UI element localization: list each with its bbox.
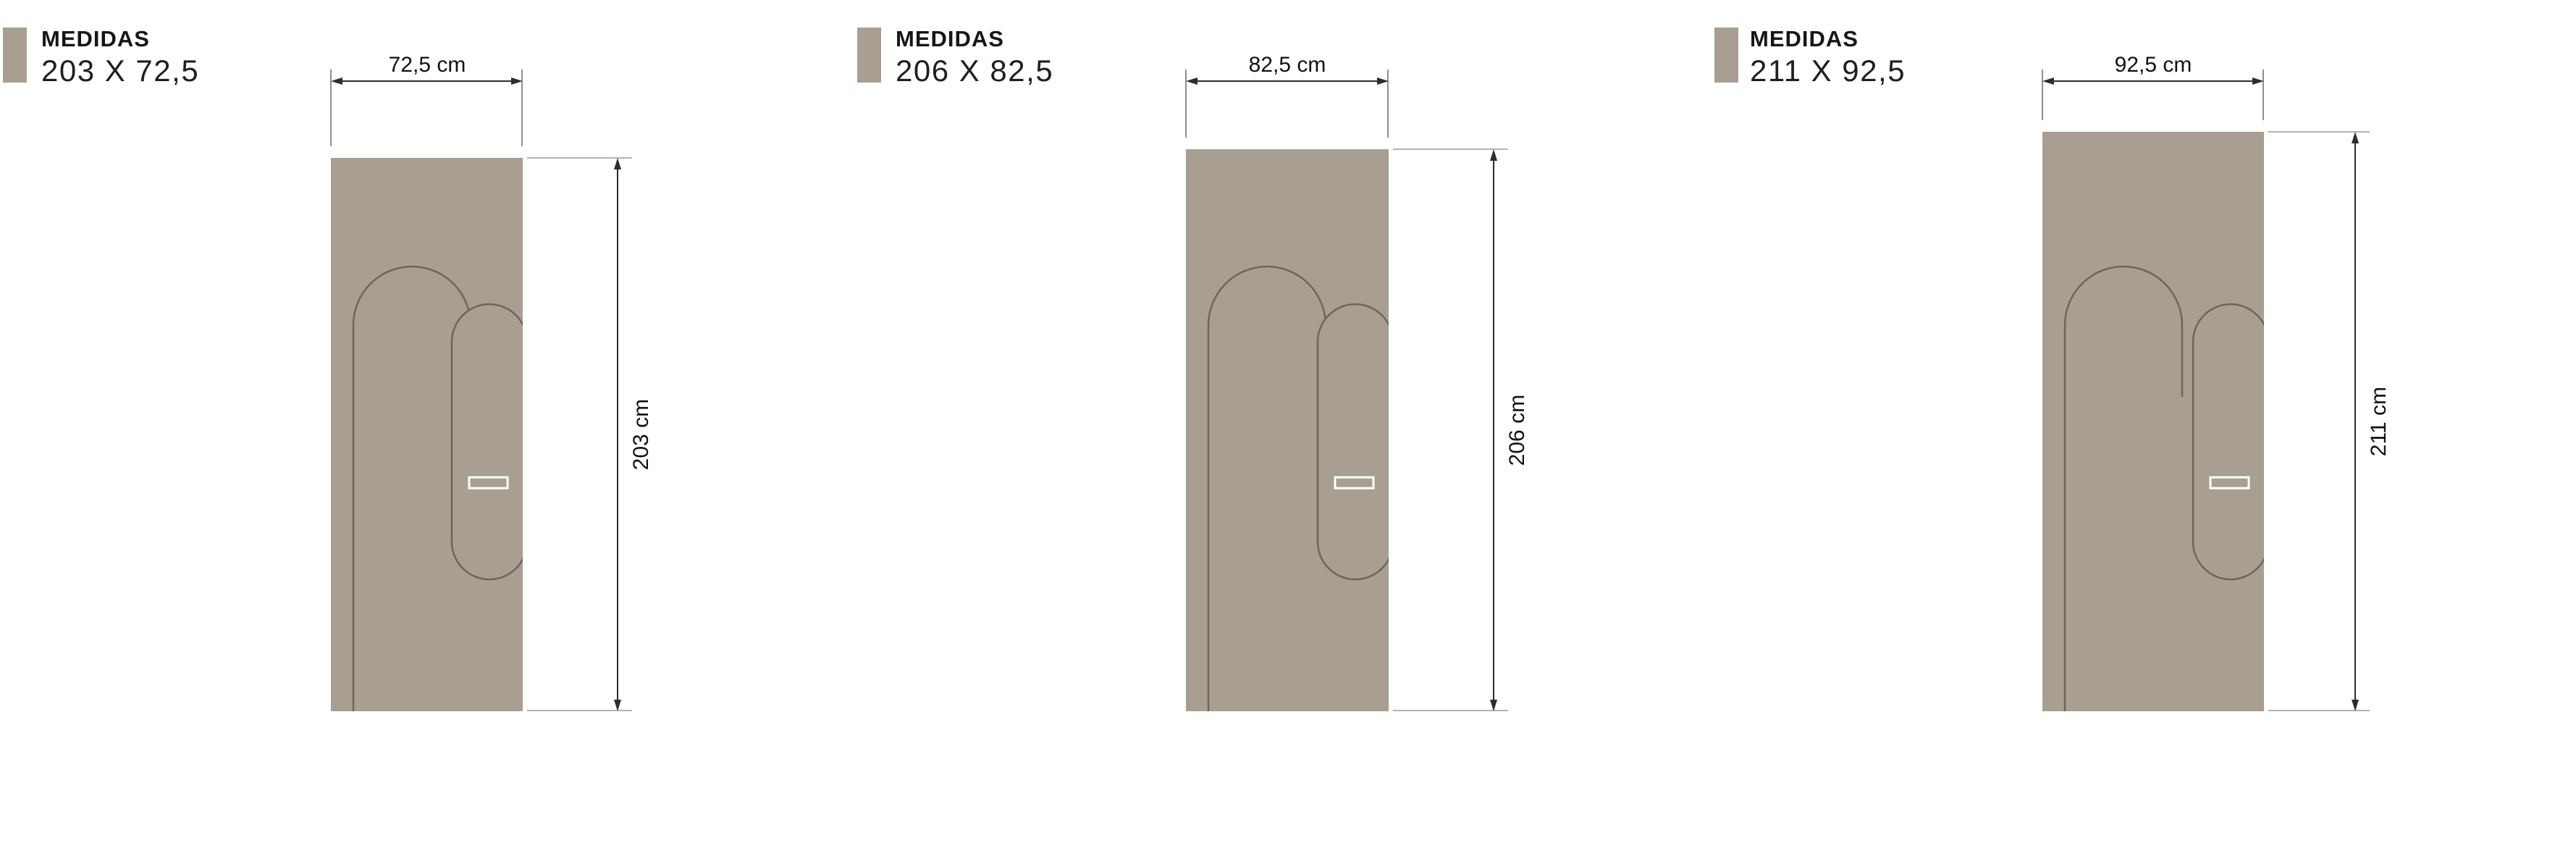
height-dimension-line [617,167,618,703]
door-handle [1335,477,1373,488]
height-dimension-line [2354,141,2356,703]
panel-medidas-211x92: MEDIDAS 211 X 92,5 92,5 cm 211 cm [1709,0,2567,859]
width-dimension-label: 72,5 cm [389,53,466,77]
panel-title: MEDIDAS [41,26,150,52]
dim-arrow-left-icon [331,77,342,85]
panel-medidas-206x82: MEDIDAS 206 X 82,5 82,5 cm 206 cm [854,0,1713,859]
height-dimension-label: 206 cm [1505,395,1530,466]
arch-groove [2065,267,2182,711]
panel-size-value: 211 X 92,5 [1750,54,1906,88]
color-swatch [1714,28,1738,83]
width-dimension-line [1195,80,1379,82]
width-dimension-line [340,80,513,82]
door-groove-pattern [1186,149,1389,711]
measurement-sheet: MEDIDAS 203 X 72,5 72,5 cm 203 cm MEDIDA… [0,0,2576,859]
dim-arrow-right-icon [2252,77,2264,85]
panel-size-value: 203 X 72,5 [41,54,199,88]
dim-arrow-down-icon [1490,700,1497,711]
capsule-groove [1318,304,1389,579]
door-groove-pattern [2042,132,2264,711]
panel-title: MEDIDAS [896,26,1004,52]
dim-arrow-down-icon [614,700,621,711]
dim-arrow-right-icon [511,77,523,85]
dim-arrow-up-icon [1490,149,1497,161]
door-graphic [331,158,523,711]
capsule-groove [452,304,523,579]
width-dimension-label: 92,5 cm [2115,53,2192,77]
dim-arrow-left-icon [1186,77,1197,85]
panel-title: MEDIDAS [1750,26,1859,52]
door-groove-pattern [331,158,523,711]
dim-arrow-left-icon [2042,77,2054,85]
capsule-groove [2193,304,2264,579]
door-graphic [2042,132,2264,711]
door-handle [2210,477,2249,488]
dim-arrow-up-icon [2352,132,2359,143]
height-dimension-line [1493,158,1494,703]
panel-medidas-203x72: MEDIDAS 203 X 72,5 72,5 cm 203 cm [0,0,859,859]
width-dimension-label: 82,5 cm [1249,53,1326,77]
arch-groove [1208,267,1326,711]
door-graphic [1186,149,1389,711]
dim-arrow-down-icon [2352,700,2359,711]
panel-size-value: 206 X 82,5 [896,54,1053,88]
width-dimension-line [2052,80,2253,82]
door-handle [469,477,508,488]
height-dimension-label: 203 cm [629,399,654,470]
color-swatch [3,28,27,83]
height-dimension-label: 211 cm [2367,387,2391,456]
dim-arrow-up-icon [614,158,621,169]
dim-arrow-right-icon [1377,77,1389,85]
color-swatch [857,28,881,83]
